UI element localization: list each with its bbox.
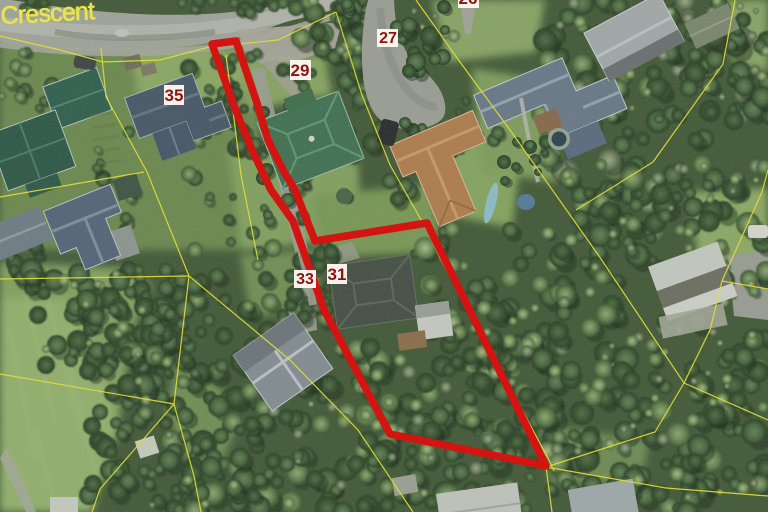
svg-text:26: 26	[459, 0, 478, 8]
svg-text:27: 27	[379, 30, 397, 47]
svg-text:31: 31	[328, 265, 347, 284]
svg-text:33: 33	[296, 271, 314, 288]
svg-text:29: 29	[291, 61, 310, 80]
svg-text:Crescent: Crescent	[0, 0, 96, 30]
svg-text:35: 35	[165, 86, 184, 105]
